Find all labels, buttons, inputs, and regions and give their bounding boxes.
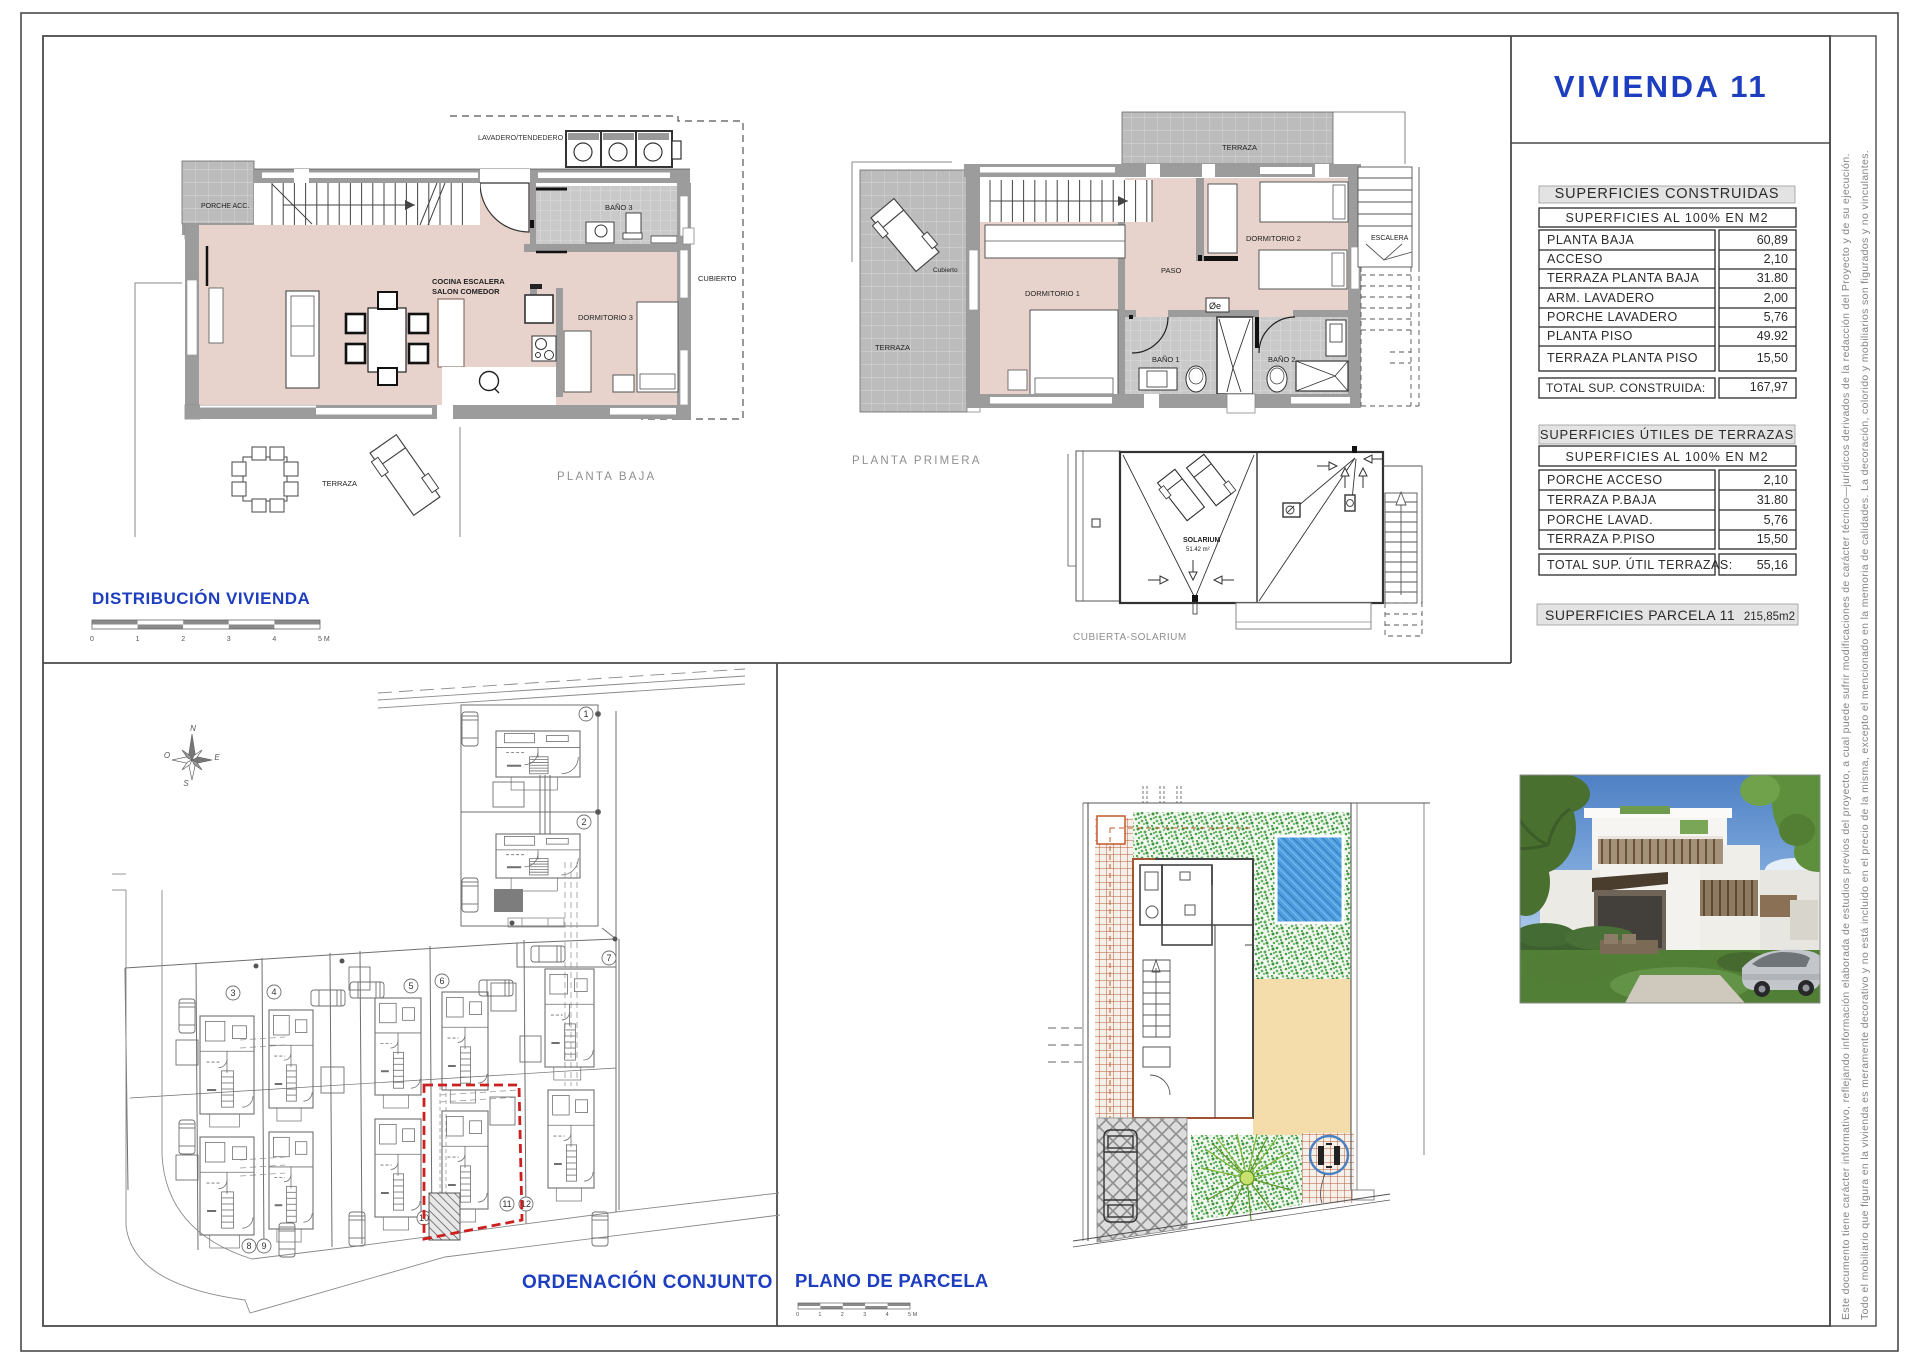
svg-text:11: 11	[502, 1199, 511, 1209]
svg-text:Øe: Øe	[1209, 301, 1221, 311]
svg-text:5 M: 5 M	[318, 636, 330, 643]
svg-text:BAÑO 2: BAÑO 2	[1268, 355, 1296, 364]
svg-text:S: S	[183, 779, 189, 788]
svg-text:4: 4	[271, 987, 276, 997]
svg-text:VIVIENDA 11: VIVIENDA 11	[1554, 69, 1768, 104]
svg-text:ACCESO: ACCESO	[1547, 252, 1603, 266]
svg-text:51.42 m²: 51.42 m²	[1186, 547, 1210, 553]
svg-text:TERRAZA PLANTA PISO: TERRAZA PLANTA PISO	[1547, 351, 1698, 365]
svg-text:2,10: 2,10	[1764, 252, 1788, 266]
svg-text:2: 2	[181, 636, 185, 643]
svg-text:BAÑO 3: BAÑO 3	[605, 203, 633, 212]
svg-text:PLANTA BAJA: PLANTA BAJA	[557, 471, 656, 483]
svg-text:4: 4	[272, 636, 276, 643]
svg-text:2,00: 2,00	[1764, 291, 1788, 305]
svg-text:SUPERFICIES PARCELA 11: SUPERFICIES PARCELA 11	[1545, 607, 1735, 623]
svg-text:215,85m2: 215,85m2	[1744, 611, 1795, 623]
svg-text:0: 0	[796, 1312, 799, 1318]
svg-text:5,76: 5,76	[1764, 513, 1788, 527]
svg-text:TERRAZA PLANTA BAJA: TERRAZA PLANTA BAJA	[1547, 271, 1700, 285]
svg-text:PLANTA BAJA: PLANTA BAJA	[1547, 233, 1634, 247]
svg-text:167,97: 167,97	[1750, 380, 1788, 394]
svg-text:DORMITORIO 3: DORMITORIO 3	[578, 313, 633, 322]
svg-text:DORMITORIO 1: DORMITORIO 1	[1025, 289, 1080, 298]
svg-text:3: 3	[227, 636, 231, 643]
svg-text:3: 3	[230, 988, 235, 998]
svg-text:60,89: 60,89	[1757, 233, 1788, 247]
svg-text:TERRAZA P.BAJA: TERRAZA P.BAJA	[1547, 493, 1657, 507]
svg-text:3: 3	[863, 1312, 866, 1318]
svg-text:1: 1	[818, 1312, 821, 1318]
svg-text:31.80: 31.80	[1757, 271, 1788, 285]
svg-text:DISTRIBUCIÓN VIVIENDA: DISTRIBUCIÓN VIVIENDA	[92, 589, 310, 608]
svg-text:COCINA ESCALERA: COCINA ESCALERA	[432, 277, 505, 286]
svg-text:CUBIERTA-SOLARIUM: CUBIERTA-SOLARIUM	[1073, 632, 1187, 643]
svg-text:5: 5	[408, 981, 413, 991]
svg-text:PLANTA PRIMERA: PLANTA PRIMERA	[852, 455, 982, 467]
svg-text:SUPERFICIES AL 100% EN M2: SUPERFICIES AL 100% EN M2	[1565, 450, 1768, 464]
svg-text:PLANTA PISO: PLANTA PISO	[1547, 329, 1633, 343]
svg-text:PORCHE ACCESO: PORCHE ACCESO	[1547, 473, 1663, 487]
svg-text:CUBIERTO: CUBIERTO	[698, 274, 737, 283]
svg-text:31.80: 31.80	[1757, 493, 1788, 507]
svg-text:49.92: 49.92	[1757, 329, 1788, 343]
svg-text:2: 2	[581, 817, 586, 827]
svg-text:SALON COMEDOR: SALON COMEDOR	[432, 287, 500, 296]
svg-text:TOTAL SUP. CONSTRUIDA:: TOTAL SUP. CONSTRUIDA:	[1546, 381, 1706, 395]
svg-text:4: 4	[886, 1312, 889, 1318]
svg-text:N: N	[190, 724, 196, 733]
svg-text:6: 6	[439, 976, 444, 986]
svg-text:PLANO DE PARCELA: PLANO DE PARCELA	[795, 1270, 989, 1291]
svg-text:15,50: 15,50	[1757, 532, 1788, 546]
svg-text:Este documento tiene carácter: Este documento tiene carácter informativ…	[1840, 153, 1852, 1320]
svg-text:LAVADERO/TENDEDERO: LAVADERO/TENDEDERO	[478, 133, 564, 142]
svg-text:DORMITORIO 2: DORMITORIO 2	[1246, 234, 1301, 243]
svg-text:TERRAZA: TERRAZA	[322, 479, 357, 488]
svg-text:ARM. LAVADERO: ARM. LAVADERO	[1547, 291, 1654, 305]
svg-text:SOLARIUM: SOLARIUM	[1183, 537, 1221, 544]
svg-text:ORDENACIÓN CONJUNTO: ORDENACIÓN CONJUNTO	[522, 1271, 773, 1293]
svg-text:Todo el mobiliario que figura: Todo el mobiliario que figura en la vivi…	[1859, 150, 1871, 1320]
svg-text:0: 0	[90, 636, 94, 643]
svg-text:1: 1	[136, 636, 140, 643]
svg-text:2: 2	[841, 1312, 844, 1318]
svg-text:Cubierto: Cubierto	[933, 267, 958, 274]
svg-text:ESCALERA: ESCALERA	[1371, 235, 1409, 242]
svg-text:8: 8	[246, 1241, 251, 1251]
svg-text:PASO: PASO	[1161, 266, 1181, 275]
svg-text:SUPERFICIES CONSTRUIDAS: SUPERFICIES CONSTRUIDAS	[1555, 186, 1780, 202]
svg-text:5 M: 5 M	[908, 1312, 918, 1318]
svg-text:9: 9	[261, 1241, 266, 1251]
svg-text:15,50: 15,50	[1757, 351, 1788, 365]
svg-text:TOTAL SUP. ÚTIL TERRAZAS:: TOTAL SUP. ÚTIL TERRAZAS:	[1547, 557, 1733, 572]
svg-text:TERRAZA: TERRAZA	[1222, 143, 1257, 152]
svg-text:E: E	[214, 753, 220, 762]
svg-text:PORCHE LAVADERO: PORCHE LAVADERO	[1547, 310, 1678, 324]
svg-text:BAÑO 1: BAÑO 1	[1152, 355, 1180, 364]
svg-text:PORCHE LAVAD.: PORCHE LAVAD.	[1547, 513, 1653, 527]
svg-text:SUPERFICIES ÚTILES DE TERRA: SUPERFICIES ÚTILES DE TERRAZAS	[1540, 427, 1794, 442]
svg-text:TERRAZA P.PISO: TERRAZA P.PISO	[1547, 532, 1655, 546]
svg-text:PORCHE ACC.: PORCHE ACC.	[201, 203, 249, 210]
svg-text:55,16: 55,16	[1757, 558, 1788, 572]
svg-text:O: O	[164, 751, 170, 760]
svg-text:7: 7	[606, 953, 611, 963]
svg-text:TERRAZA: TERRAZA	[875, 343, 910, 352]
svg-text:2,10: 2,10	[1764, 473, 1788, 487]
svg-text:5,76: 5,76	[1764, 310, 1788, 324]
svg-text:SUPERFICIES AL 100% EN M2: SUPERFICIES AL 100% EN M2	[1565, 211, 1768, 225]
svg-text:1: 1	[583, 709, 588, 719]
